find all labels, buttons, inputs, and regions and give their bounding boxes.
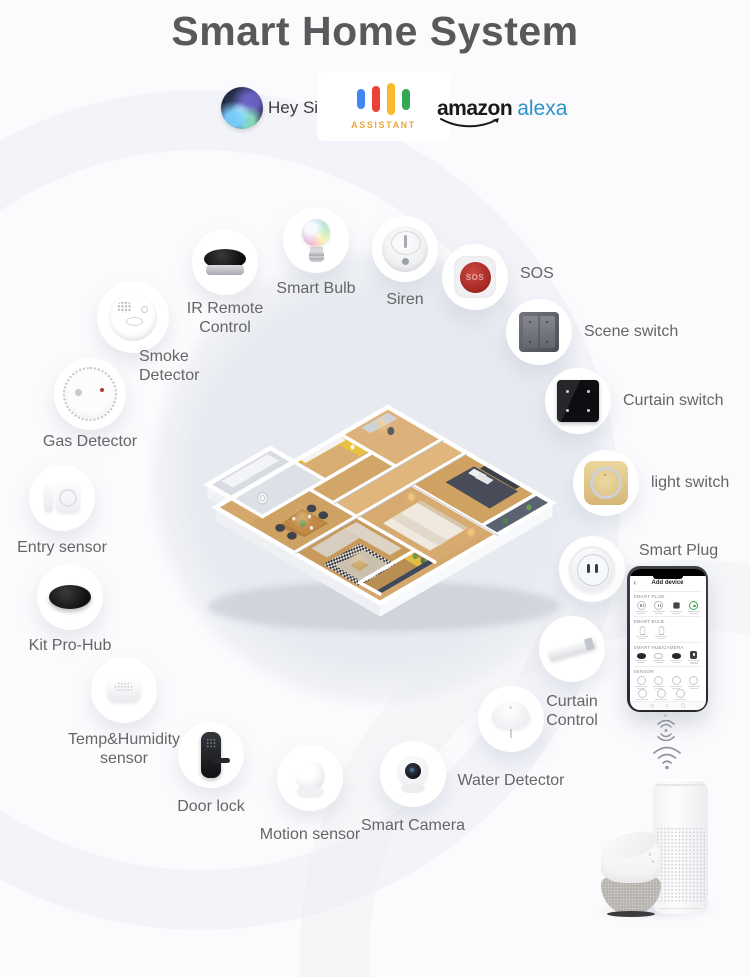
icon-label-stub	[635, 660, 647, 661]
phone-section-label: SMART BULB	[634, 616, 702, 624]
phone-device-item[interactable]	[651, 651, 667, 663]
device-smart-plug: Smart Plug	[559, 536, 625, 602]
device-gas-detector: Gas Detector	[54, 358, 126, 430]
device-entry-sensor: Entry sensor	[29, 465, 95, 531]
icon-label-stub	[653, 686, 665, 687]
plug-outline-icon[interactable]	[637, 601, 646, 610]
device-temp-humidity-sensor: Temp&Humidity sensor	[91, 657, 157, 723]
motion-sensor-icon	[277, 745, 343, 811]
sensor-icon[interactable]	[672, 676, 681, 685]
wireless-ripple-icon	[652, 720, 680, 741]
icon-label-stub	[688, 660, 700, 661]
device-scene-switch: Scene switch	[506, 299, 572, 365]
device-kit-pro-hub: Kit Pro-Hub	[37, 564, 103, 630]
phone-nav-icon[interactable]: ▢	[681, 702, 686, 710]
bulb-outline-icon[interactable]	[639, 626, 644, 635]
phone-nav-bar: ◁○▢	[630, 701, 706, 710]
phone-device-item[interactable]	[686, 676, 702, 689]
device-light-switch: light switch	[573, 450, 639, 516]
icon-label-stub	[635, 611, 647, 612]
icon-label-stub	[690, 688, 698, 689]
phone-device-item[interactable]	[653, 626, 670, 639]
icon-label-stub	[655, 662, 663, 663]
google-assistant-logo: ASSISTANT	[317, 71, 450, 141]
google-assistant-label: ASSISTANT	[351, 120, 416, 130]
kit-pro-hub-icon	[37, 564, 103, 630]
icon-label-stub	[688, 686, 700, 687]
alexa-wordmark: alexa	[517, 97, 567, 121]
device-siren: Siren	[372, 216, 438, 282]
plug-green-icon[interactable]	[689, 601, 698, 610]
google-home-speaker	[599, 831, 663, 919]
icon-label-stub	[670, 611, 682, 612]
sos-button-icon: SOS	[442, 244, 508, 310]
door-lock-icon	[178, 722, 244, 788]
sensor-icon[interactable]	[654, 676, 663, 685]
icon-label-stub	[690, 662, 698, 663]
phone-screen: ‹ Add device SMART PLUGSMART BULBSMART H…	[630, 569, 706, 710]
phone-nav-icon[interactable]: ◁	[650, 702, 654, 710]
amazon-wordmark: amazon	[437, 97, 512, 121]
curtain-switch-icon	[545, 368, 611, 434]
phone-device-item[interactable]	[669, 651, 685, 663]
icon-label-stub	[672, 662, 680, 663]
phone-nav-icon[interactable]: ○	[666, 702, 669, 710]
icon-label-stub	[657, 638, 665, 639]
phone-device-item[interactable]	[669, 676, 685, 689]
phone-section-label: SMART HUB/CAMERA	[634, 642, 702, 650]
hub-dark-icon[interactable]	[637, 653, 646, 659]
phone-device-item[interactable]	[651, 676, 667, 689]
icon-label-stub	[636, 636, 648, 637]
google-assistant-bars-icon	[357, 82, 410, 116]
sensor-icon[interactable]	[689, 676, 698, 685]
device-ir-remote-control: IR Remote Control	[192, 229, 258, 295]
smoke-detector-icon	[97, 281, 169, 353]
phone-device-item[interactable]	[634, 601, 650, 614]
icon-label-stub	[690, 613, 698, 614]
floorplan-illustration	[192, 390, 568, 652]
bulb-outline-icon[interactable]	[658, 626, 663, 635]
entry-sensor-icon	[29, 465, 95, 531]
phone-device-item[interactable]	[634, 626, 651, 639]
amazon-alexa-logo: amazon alexa	[437, 97, 567, 121]
icon-label-stub	[637, 613, 645, 614]
phone-device-item[interactable]	[634, 651, 650, 663]
device-sos: SOS SOS	[442, 244, 508, 310]
hub-light-icon[interactable]	[654, 653, 663, 659]
device-water-detector: Water Detector	[478, 686, 544, 752]
phone-sections: SMART PLUGSMART BULBSMART HUB/CAMERASENS…	[630, 591, 706, 702]
sensor-icon[interactable]	[657, 689, 666, 698]
sensor-icon[interactable]	[676, 689, 685, 698]
icon-label-stub	[653, 660, 665, 661]
smart-bulb-icon	[283, 207, 349, 273]
icon-label-stub	[670, 686, 682, 687]
icon-label-stub	[672, 613, 680, 614]
smart-plug-icon	[559, 536, 625, 602]
phone-section-label: SMART PLUG	[634, 591, 702, 599]
device-curtain-control: Curtain Control	[539, 616, 605, 682]
temp-humidity-icon	[91, 657, 157, 723]
device-motion-sensor: Motion sensor	[277, 745, 343, 811]
siri-icon	[221, 87, 263, 129]
light-switch-icon	[573, 450, 639, 516]
amazon-smile-icon	[439, 117, 501, 129]
plug-outline-icon[interactable]	[654, 601, 663, 610]
camera-icon[interactable]	[690, 651, 697, 659]
page-title: Smart Home System	[0, 8, 750, 55]
icon-label-stub	[638, 638, 646, 639]
ir-remote-icon	[192, 229, 258, 295]
icon-label-stub	[655, 613, 663, 614]
plug-dark-icon[interactable]	[673, 602, 679, 608]
device-door-lock: Door lock	[178, 722, 244, 788]
icon-label-stub	[670, 660, 682, 661]
smart-home-poster: Smart Home System Hey Siri ASSISTANT ama…	[0, 0, 750, 977]
phone-app-title: Add device	[651, 580, 683, 586]
sensor-icon[interactable]	[637, 676, 646, 685]
icon-label-stub	[653, 611, 665, 612]
wifi-icon	[649, 744, 685, 771]
icon-label-stub	[635, 686, 647, 687]
phone-notch	[630, 569, 706, 576]
icon-label-stub	[637, 662, 645, 663]
gas-detector-icon	[54, 358, 126, 430]
smart-camera-icon	[380, 741, 446, 807]
device-smart-bulb: Smart Bulb	[283, 207, 349, 273]
connection-dot	[664, 714, 667, 717]
device-smoke-detector: Smoke Detector	[97, 281, 169, 353]
smartphone: ‹ Add device SMART PLUGSMART BULBSMART H…	[627, 566, 708, 712]
phone-device-item[interactable]	[669, 601, 685, 614]
water-detector-icon	[478, 686, 544, 752]
back-icon[interactable]: ‹	[634, 578, 637, 588]
phone-section-label: SENSOR	[634, 666, 702, 674]
device-smart-camera: Smart Camera	[380, 741, 446, 807]
sensor-icon[interactable]	[638, 689, 647, 698]
phone-device-item[interactable]	[634, 676, 650, 689]
icon-label-stub	[655, 636, 667, 637]
siren-icon	[372, 216, 438, 282]
phone-device-item[interactable]	[651, 601, 667, 614]
phone-device-item[interactable]	[686, 651, 702, 663]
phone-device-item[interactable]	[686, 601, 702, 614]
device-curtain-switch: Curtain switch	[545, 368, 611, 434]
curtain-control-icon	[539, 616, 605, 682]
hub-dark-icon[interactable]	[672, 653, 681, 659]
scene-switch-icon	[506, 299, 572, 365]
icon-label-stub	[688, 611, 700, 612]
